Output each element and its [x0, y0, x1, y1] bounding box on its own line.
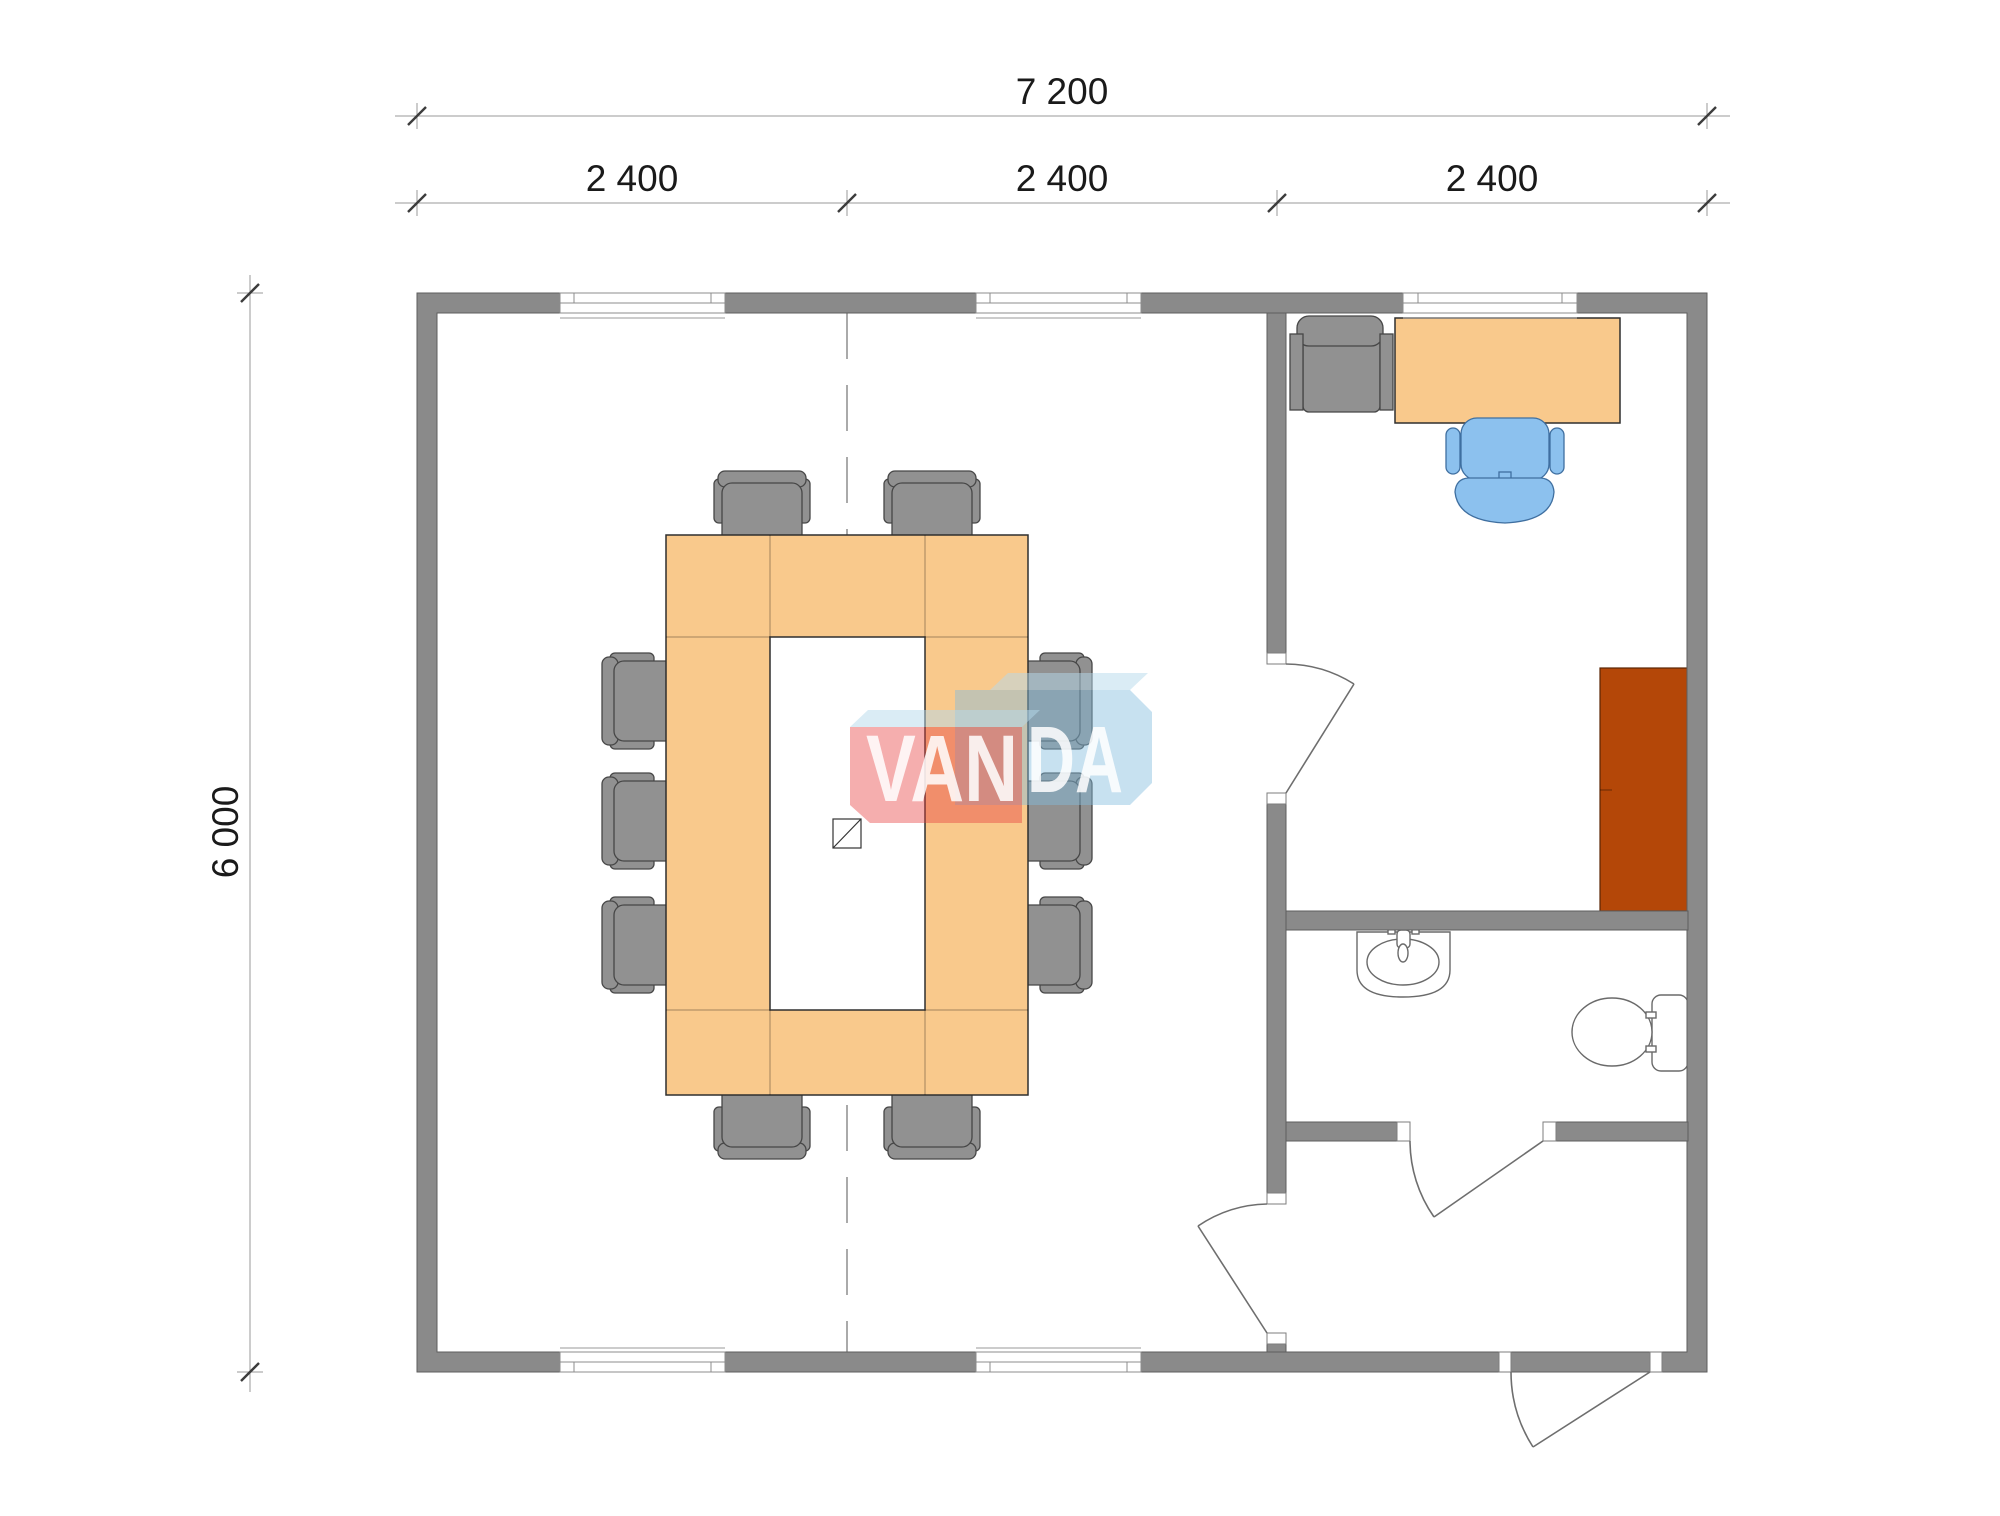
- logo-text-da: DA: [1027, 707, 1123, 813]
- window: [560, 1348, 725, 1372]
- office-chair-blue: [1446, 418, 1564, 523]
- toilet-hinge: [1646, 1012, 1656, 1018]
- dim-label-bay-2: 2 400: [1016, 158, 1109, 199]
- toilet-bowl: [1572, 998, 1652, 1066]
- bathroom-wall-bottom: [1556, 1122, 1688, 1141]
- office-chair-seat: [1461, 418, 1549, 480]
- office-chair-backrest: [1455, 478, 1554, 523]
- toilet: [1572, 995, 1695, 1071]
- door-frame: [1499, 1352, 1511, 1372]
- logo-blue-top-face: [990, 673, 1148, 690]
- door-leaf: [1533, 1372, 1650, 1447]
- bathroom-wall-bottom: [1286, 1122, 1397, 1141]
- door-frame: [1650, 1352, 1662, 1372]
- dim-label-bay-3: 2 400: [1446, 158, 1539, 199]
- door-swing-arc: [1198, 1204, 1267, 1226]
- sink-faucet-spout: [1398, 944, 1408, 962]
- door-frame: [1267, 1193, 1286, 1204]
- door-office: [1286, 664, 1354, 793]
- office-chair-armrest: [1446, 428, 1460, 474]
- interior-wall-vertical: [1267, 313, 1286, 653]
- floor-plan-svg: 7 200 2 400 2 400 2 400 6 000: [0, 0, 2000, 1516]
- floor-plan-page: 7 200 2 400 2 400 2 400 6 000: [0, 0, 2000, 1516]
- logo-text-van: VAN: [866, 716, 1018, 822]
- bathroom-fixtures: [1357, 928, 1695, 1071]
- door-frame: [1543, 1122, 1556, 1141]
- door-swing-arc: [1286, 664, 1354, 684]
- sink: [1357, 928, 1450, 997]
- door-leaf: [1286, 684, 1354, 793]
- door-swing-arc: [1511, 1372, 1533, 1447]
- office-chair-armrest: [1550, 428, 1564, 474]
- dim-label-total-width: 7 200: [1016, 71, 1109, 112]
- armchair-backrest: [1297, 316, 1383, 346]
- door-frame: [1267, 653, 1286, 664]
- door-bathroom: [1410, 1141, 1543, 1217]
- column-symbol: [833, 819, 861, 848]
- toilet-tank: [1652, 995, 1688, 1071]
- dim-label-height: 6 000: [205, 786, 246, 879]
- window: [560, 293, 725, 318]
- window: [976, 1348, 1141, 1372]
- interior-wall-vertical: [1267, 804, 1286, 1193]
- cabinet-body: [1600, 668, 1688, 911]
- door-leaf: [1198, 1226, 1267, 1333]
- armchair-armrest: [1290, 334, 1303, 410]
- toilet-hinge: [1646, 1046, 1656, 1052]
- office-furniture: [1290, 316, 1688, 911]
- bathroom-wall-top: [1286, 911, 1688, 930]
- interior-wall-vertical: [1267, 1344, 1286, 1352]
- armchair-armrest: [1380, 334, 1393, 410]
- door-frame: [1267, 793, 1286, 804]
- door-entrance: [1511, 1372, 1650, 1447]
- office-desk: [1395, 318, 1620, 423]
- door-swing-arc: [1410, 1141, 1434, 1217]
- door-frame: [1397, 1122, 1410, 1141]
- dim-label-bay-1: 2 400: [586, 158, 679, 199]
- door-leaf: [1434, 1141, 1543, 1217]
- office-cabinet: [1600, 668, 1688, 911]
- window: [1403, 293, 1577, 318]
- door-frame: [1267, 1333, 1286, 1344]
- door-meeting-room: [1198, 1204, 1267, 1333]
- office-armchair: [1290, 316, 1393, 412]
- window: [976, 293, 1141, 318]
